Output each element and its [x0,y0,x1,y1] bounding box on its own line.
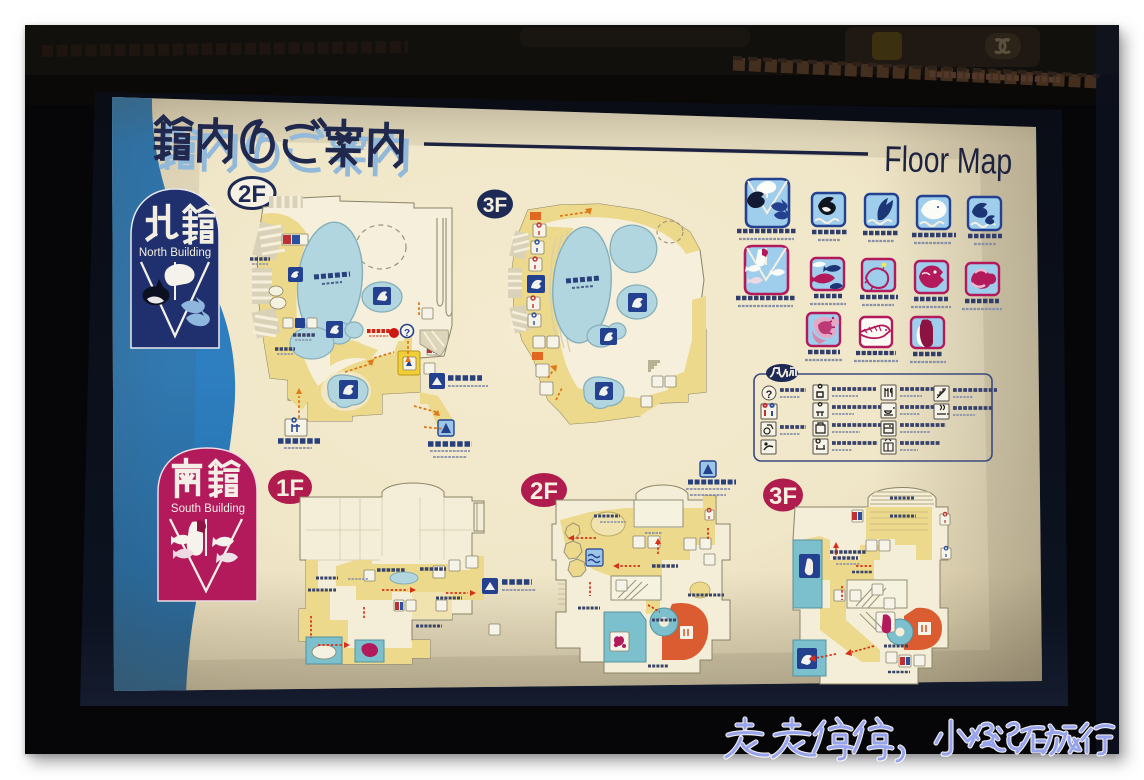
svg-text:South Building: South Building [171,503,245,515]
svg-text:3F: 3F [483,194,508,217]
svg-text:3F: 3F [769,483,797,510]
svg-text:2F: 2F [530,478,558,505]
svg-text:2F: 2F [238,181,266,208]
svg-text:?: ? [766,389,773,401]
svg-text:?: ? [404,328,410,339]
svg-text:North Building: North Building [139,247,211,259]
svg-text:Floor Map: Floor Map [884,138,1013,182]
